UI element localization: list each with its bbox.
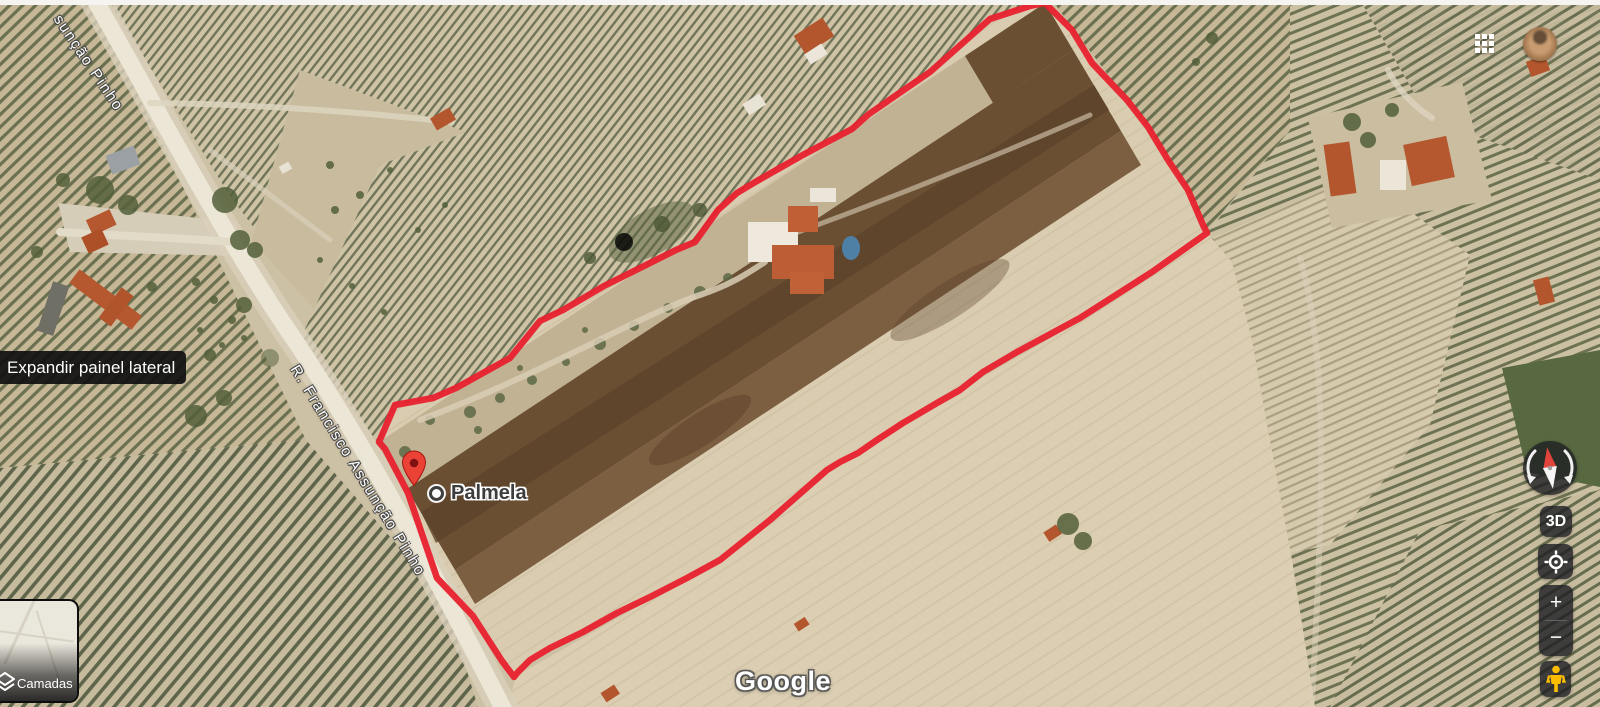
layers-button-label: Camadas [17, 676, 73, 691]
street-view-pegman-icon [1546, 665, 1566, 693]
my-location-button[interactable] [1538, 544, 1573, 579]
zoom-out-button[interactable]: − [1539, 622, 1573, 654]
zoom-divider [1545, 620, 1567, 621]
locality-dot-icon [429, 486, 444, 501]
layers-icon [0, 671, 17, 693]
pegman-button[interactable] [1540, 661, 1571, 697]
place-label[interactable]: Palmela [451, 482, 527, 505]
tilt-3d-button[interactable]: 3D [1540, 506, 1572, 537]
layers-button[interactable]: Camadas [0, 599, 79, 703]
zoom-control: + − [1539, 585, 1573, 656]
compass-needle-icon [1523, 441, 1577, 495]
google-maps-satellite-view: R. Francisco Assunção Pinho sunção Pinho… [0, 0, 1600, 707]
satellite-map-canvas[interactable] [0, 0, 1600, 707]
tilt-3d-label: 3D [1546, 513, 1566, 531]
compass-control[interactable] [1523, 441, 1577, 495]
zoom-in-button[interactable]: + [1539, 587, 1573, 619]
crosshair-target-icon [1543, 549, 1569, 575]
expand-side-panel-tooltip: Expandir painel lateral [0, 351, 186, 384]
account-avatar[interactable] [1523, 27, 1557, 61]
google-watermark: Google [735, 666, 831, 697]
minimap-road [0, 629, 74, 642]
browser-top-strip [0, 0, 1600, 5]
google-apps-grid-icon[interactable] [1475, 34, 1494, 53]
